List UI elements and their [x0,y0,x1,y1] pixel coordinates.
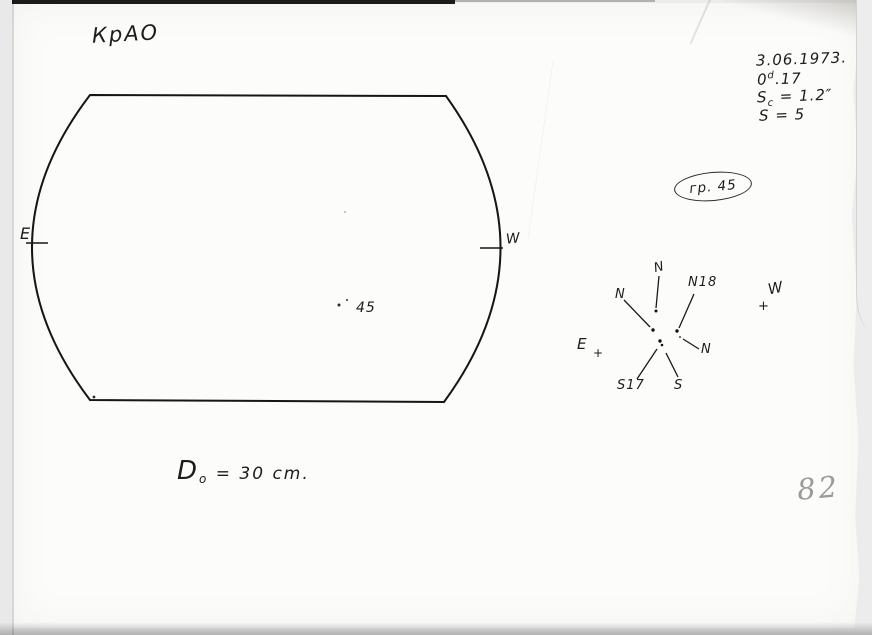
star-dot [651,328,654,331]
observatory-title: КрАО [91,22,159,46]
observation-date: 3.06.1973. [756,50,848,68]
diameter-symbol: D [177,456,199,486]
sunspot-group-label: 45 [356,301,376,315]
seeing-symbol: S [757,88,768,106]
star-label-s: S [674,379,683,392]
star-label-s17: S17 [617,379,645,392]
page-number: 82 [796,469,842,507]
star-label-n18: N18 [688,276,717,289]
diameter-note: Do = 30 cm. [177,458,310,485]
star-label-n-right: N [701,343,712,356]
disk-west-label: W [505,231,521,246]
diameter-value: = 30 cm. [208,464,309,484]
scanned-observation-sheet: КрАО 3.06.1973. 0d.17 Sc = 1.2″ S = 5 гр… [0,0,872,635]
solar-disk-outline [32,95,501,402]
star-dot [655,310,658,313]
star-label-east: E [577,337,587,352]
star-dot [675,329,678,332]
star-chart-dots [651,310,681,347]
time-base: 0 [757,70,768,88]
ink-drawing-layer [0,0,872,635]
disk-east-label: E [20,226,31,242]
star-dot [658,339,661,342]
star-line-n-right [683,339,699,349]
star-label-n-left: N [615,288,626,301]
star-line-n18 [679,294,694,328]
star-line-s17 [637,349,657,379]
star-line-n-top [656,276,659,308]
disk-corner-dot [93,396,96,399]
sunspot-dot-small [346,299,348,301]
seeing-number: = 1.2″ [774,86,833,106]
sunspot-dot [338,304,341,307]
star-dot-faint [679,336,681,338]
star-chart-lines [624,276,699,379]
observation-time: 0d.17 [757,70,802,88]
star-line-n-left [624,300,650,327]
star-line-s [666,353,678,377]
star-plus-west: + [758,300,769,313]
star-plus-east: + [593,347,603,359]
group-number-label: гр. 45 [689,176,738,196]
faint-paper-speck [344,211,346,213]
star-label-west: W [767,280,786,298]
time-fraction: .17 [775,69,802,88]
diameter-subscript: o [199,472,208,486]
s-index-value: S = 5 [759,107,806,124]
star-dot [661,344,664,347]
